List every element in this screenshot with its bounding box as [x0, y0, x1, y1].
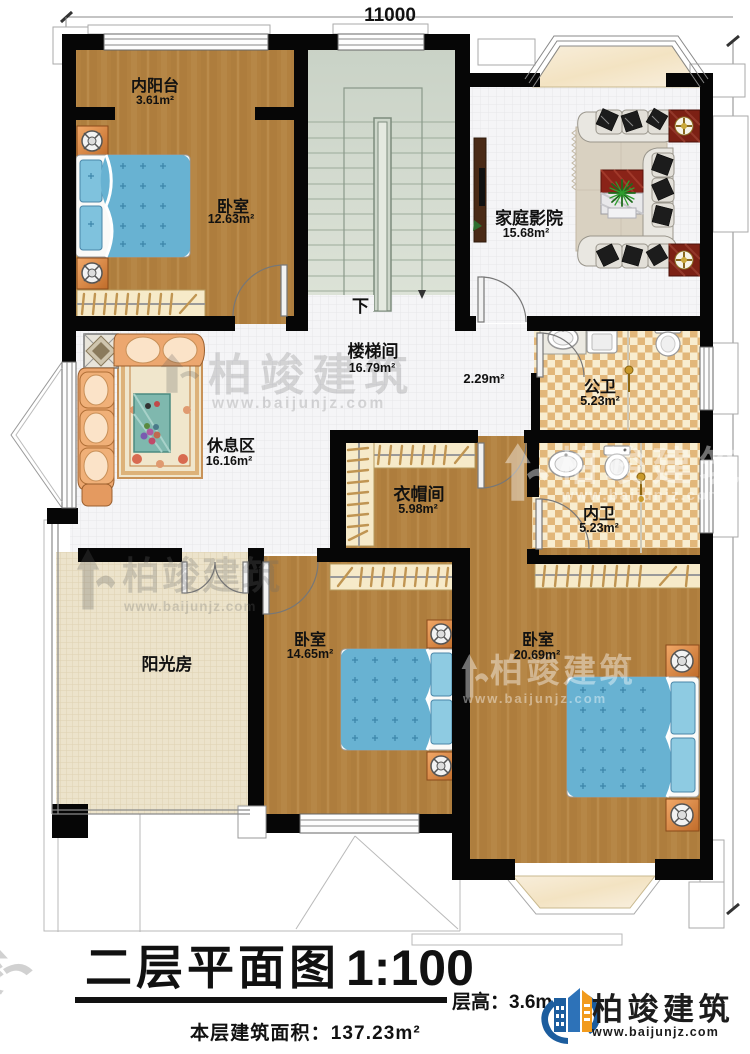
svg-text:楼梯间: 楼梯间: [348, 341, 399, 361]
svg-text:www.baijunjz.com: www.baijunjz.com: [561, 487, 723, 504]
svg-text:下: 下: [352, 297, 369, 316]
svg-text:20.69m²: 20.69m²: [514, 648, 561, 662]
svg-text:www.baijunjz.com: www.baijunjz.com: [211, 395, 386, 412]
svg-text:16.79m²: 16.79m²: [349, 361, 396, 375]
svg-text:层高：3.6m: 层高：3.6m: [452, 990, 552, 1013]
svg-text:衣帽间: 衣帽间: [394, 484, 445, 504]
svg-text:3.61m²: 3.61m²: [136, 93, 174, 107]
svg-text:二层平面图: 二层平面图: [85, 941, 340, 994]
svg-text:www.baijunjz.com: www.baijunjz.com: [462, 691, 607, 706]
svg-text:本层建筑面积：137.23m²: 本层建筑面积：137.23m²: [190, 1021, 421, 1044]
svg-text:www.baijunjz.com: www.baijunjz.com: [591, 1025, 719, 1039]
svg-text:柏竣建筑: 柏竣建筑: [122, 556, 282, 598]
svg-text:5.98m²: 5.98m²: [398, 502, 438, 516]
svg-text:www.baijunjz.com: www.baijunjz.com: [123, 599, 257, 614]
svg-text:休息区: 休息区: [206, 436, 255, 455]
svg-text:12.63m²: 12.63m²: [208, 212, 255, 226]
svg-text:1:100: 1:100: [346, 940, 474, 996]
svg-text:家庭影院: 家庭影院: [495, 208, 563, 228]
svg-text:竣: 竣: [0, 955, 10, 999]
svg-text:11000: 11000: [364, 5, 416, 26]
svg-text:16.16m²: 16.16m²: [206, 454, 253, 468]
svg-text:5.23m²: 5.23m²: [579, 521, 619, 535]
svg-text:柏竣建筑: 柏竣建筑: [558, 445, 746, 489]
svg-text:柏竣建筑: 柏竣建筑: [490, 652, 636, 689]
svg-text:14.65m²: 14.65m²: [287, 647, 334, 661]
svg-text:5.23m²: 5.23m²: [580, 394, 620, 408]
svg-text:卧室: 卧室: [522, 630, 554, 649]
svg-text:柏竣建筑: 柏竣建筑: [592, 992, 734, 1027]
svg-text:阳光房: 阳光房: [142, 654, 193, 674]
svg-text:2.29m²: 2.29m²: [463, 371, 505, 386]
svg-text:15.68m²: 15.68m²: [503, 226, 550, 240]
